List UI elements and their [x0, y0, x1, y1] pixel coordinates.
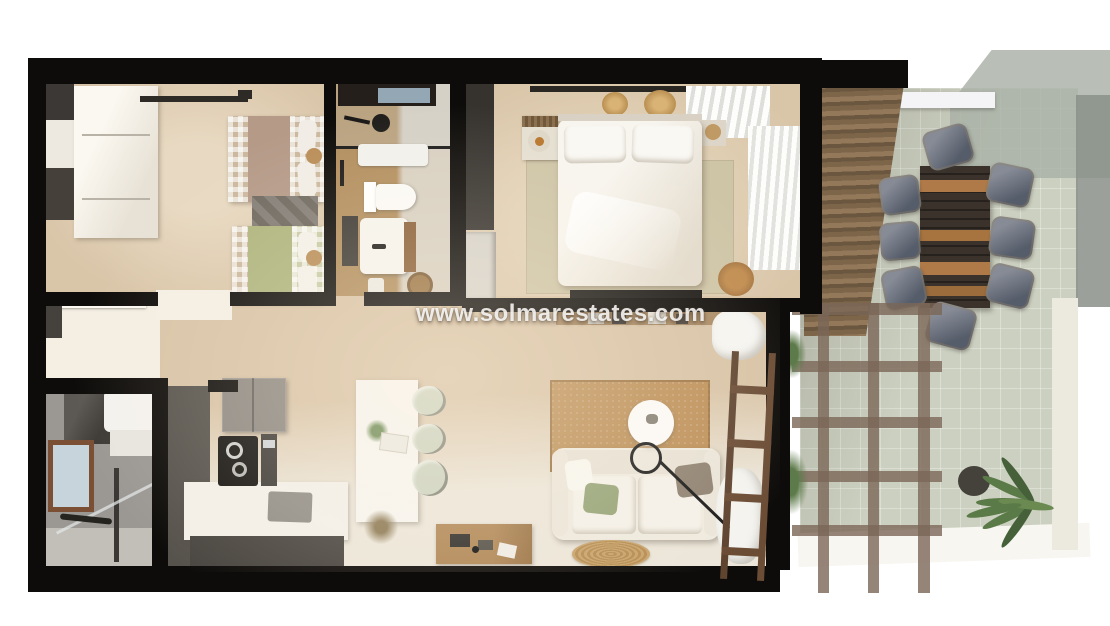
dark-cabinet [44, 168, 74, 220]
dining-table [356, 380, 418, 522]
wall-bottom [28, 566, 780, 592]
oven [261, 434, 277, 486]
wall-mid-left [46, 292, 158, 306]
serving-tray [379, 432, 409, 454]
sink-cabinet [110, 430, 152, 456]
round-jute-rug [572, 540, 650, 568]
faucet-icon [372, 244, 386, 249]
trellis-beam [918, 303, 930, 593]
wood-stool [306, 250, 322, 266]
watermark-text: www.solmarestates.com [416, 300, 706, 328]
island-front [190, 536, 344, 566]
wall-bath2-kitchen [152, 378, 168, 568]
wall-kitchen-stub [208, 380, 238, 392]
camera-icon [472, 546, 479, 553]
cooktop [218, 436, 258, 486]
jute-pouf [718, 262, 754, 296]
shower-column [114, 468, 119, 562]
wall-top [28, 58, 808, 84]
wall-hall-bath2 [28, 378, 160, 394]
ceiling-medallion [602, 92, 628, 116]
wall-master-right [800, 58, 822, 314]
skylight-frame [338, 84, 436, 106]
potted-plant [950, 462, 1068, 558]
kitchen-counter [184, 482, 348, 540]
skylight-glass [378, 88, 430, 103]
side-table [628, 400, 674, 446]
pillow [297, 161, 317, 196]
tv-console [436, 524, 532, 564]
console-item [497, 542, 517, 558]
duvet-fold [563, 189, 683, 273]
lamp-bulb [535, 137, 544, 146]
window [48, 440, 94, 512]
trellis-beam [792, 417, 942, 428]
dried-plant [364, 510, 398, 544]
checkered-blanket [228, 116, 248, 202]
table-wood-band [920, 262, 990, 275]
pillow [564, 124, 627, 163]
hallway-floor [46, 300, 160, 382]
trellis-beam [818, 303, 829, 593]
terrace-chair [878, 220, 921, 261]
wall-mid-right [230, 292, 324, 306]
pillow [631, 124, 694, 164]
desk [44, 120, 74, 168]
trellis-beam [868, 303, 879, 593]
wall-left [28, 58, 46, 592]
table-wood-band [920, 286, 990, 296]
terrace-right-wall [1076, 95, 1110, 307]
master-wardrobe [466, 84, 494, 230]
wardrobe-handle [82, 134, 150, 136]
oven-window [263, 440, 275, 448]
cabinet-seam [252, 378, 254, 432]
bathroom2-floor-light [44, 528, 156, 568]
wall-bedroom2-bath1 [324, 84, 336, 306]
bathroom1-mirror [342, 216, 358, 266]
pillow [297, 265, 317, 294]
console-item [450, 534, 470, 547]
bathroom2-sink [104, 390, 154, 432]
white-beam [895, 92, 995, 108]
bedside-rug [252, 196, 318, 230]
pergola-trellis [792, 303, 942, 593]
wardrobe-handle [82, 198, 150, 200]
nightstand [522, 116, 558, 160]
wood-stool [306, 148, 322, 164]
trellis-beam [792, 361, 942, 372]
toilet-bowl [376, 184, 416, 210]
table-wood-band [920, 230, 990, 241]
ceiling-light-bar [140, 96, 248, 102]
trellis-beam [792, 471, 942, 482]
curtain-right [748, 126, 802, 270]
terrace-chair [987, 215, 1036, 261]
master-dresser [466, 232, 496, 300]
doorway-niche [156, 290, 232, 320]
slat-bench-top [522, 116, 558, 127]
dark-cabinet [44, 82, 74, 120]
ceiling-fixture [238, 90, 252, 99]
table-lamp-icon [705, 124, 721, 140]
headboard [558, 114, 702, 121]
table-wood-band [920, 180, 990, 192]
kitchen-stool [267, 491, 312, 523]
vanity-wood-edge [404, 222, 416, 272]
terrace-chair [878, 173, 923, 216]
wall-bath1-master [450, 58, 466, 306]
trellis-beam [792, 525, 942, 536]
checkered-blanket [232, 226, 248, 302]
wardrobe [74, 86, 158, 238]
hall-cabinet [46, 302, 62, 338]
shower-tray [358, 144, 428, 166]
table-decor [646, 414, 658, 424]
pot-icon [232, 462, 247, 477]
pillow-green [583, 482, 620, 515]
pot-icon [226, 442, 243, 459]
shower-head-icon [372, 114, 390, 132]
terrace-dining-table [920, 166, 990, 308]
nightstand [700, 120, 726, 146]
console-item [478, 540, 493, 550]
floor-plan-render: www.solmarestates.com [0, 0, 1110, 626]
double-bed [558, 120, 702, 286]
toilet [364, 182, 376, 212]
arc-lamp-shade [630, 442, 662, 474]
towel-bar [340, 160, 344, 186]
